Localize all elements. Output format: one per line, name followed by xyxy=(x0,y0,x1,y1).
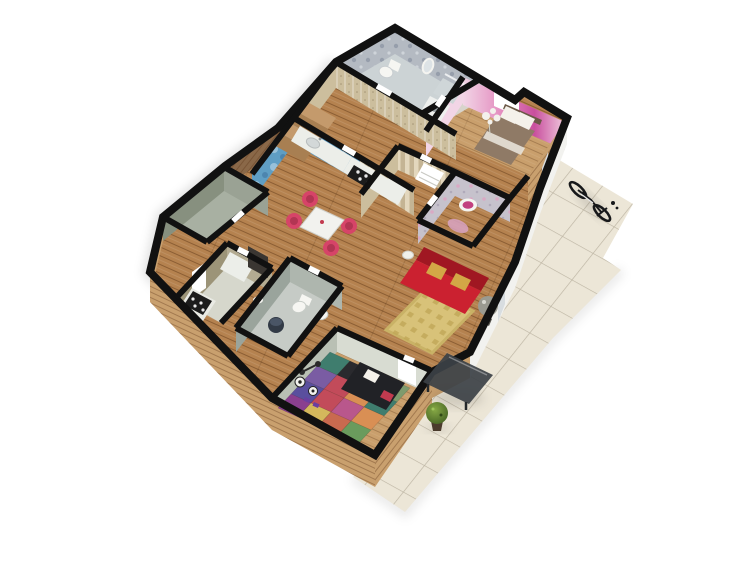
vanity-mirror-center xyxy=(463,201,474,209)
bicycle-part-2 xyxy=(616,207,619,210)
stove-burner-1 xyxy=(191,297,194,300)
chair-seat-1 xyxy=(306,195,314,203)
soccer-ball-1-patch xyxy=(298,380,301,383)
bicycle-part-1 xyxy=(611,201,615,205)
chair-seat-3 xyxy=(327,244,335,252)
flower-bloom-4 xyxy=(488,120,493,125)
stove-burner-3 xyxy=(193,304,196,307)
side-table xyxy=(403,251,414,259)
chair-seat-4 xyxy=(345,222,353,230)
topiary-leaf-1 xyxy=(432,408,435,411)
floor-plan-canvas xyxy=(0,0,750,563)
floor-plan-render xyxy=(0,0,750,563)
topiary-ball xyxy=(426,402,448,424)
faucet xyxy=(319,138,322,141)
barbell-plate-2 xyxy=(315,361,321,367)
stove-burner-4 xyxy=(201,308,204,311)
stove-burner-2 xyxy=(199,301,202,304)
chair-seat-2 xyxy=(290,217,298,225)
burner-3 xyxy=(358,177,361,180)
soccer-ball-2-patch xyxy=(312,390,315,393)
flower-bloom-3 xyxy=(494,115,501,122)
topiary-leaf-2 xyxy=(440,414,443,417)
decor-plant-detail-1 xyxy=(482,300,486,304)
pedestal-sink-top xyxy=(270,318,282,326)
flower-bloom-1 xyxy=(482,112,490,120)
flower-bloom-2 xyxy=(490,108,496,114)
bicycle-seat xyxy=(582,191,586,195)
burner-2 xyxy=(364,174,367,177)
burner-1 xyxy=(356,170,359,173)
table-decor xyxy=(320,220,324,224)
